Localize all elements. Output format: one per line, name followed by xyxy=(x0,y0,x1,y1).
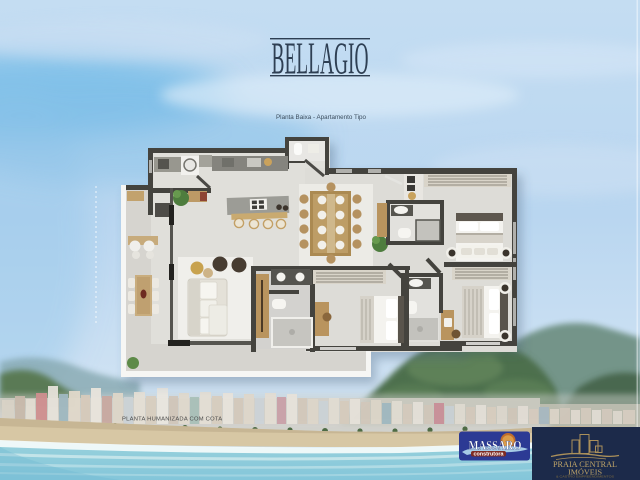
svg-text:MASSARO: MASSARO xyxy=(469,439,522,453)
svg-text:construtora: construtora xyxy=(474,452,504,458)
svg-text:PLANTA HUMANIZADA COM COTA: PLANTA HUMANIZADA COM COTA xyxy=(122,417,222,423)
svg-text:Planta Baixa - Apartamento Tip: Planta Baixa - Apartamento Tipo xyxy=(276,114,366,121)
svg-text:& CASTRO EMPREENDIMENTOS: & CASTRO EMPREENDIMENTOS xyxy=(556,474,614,478)
